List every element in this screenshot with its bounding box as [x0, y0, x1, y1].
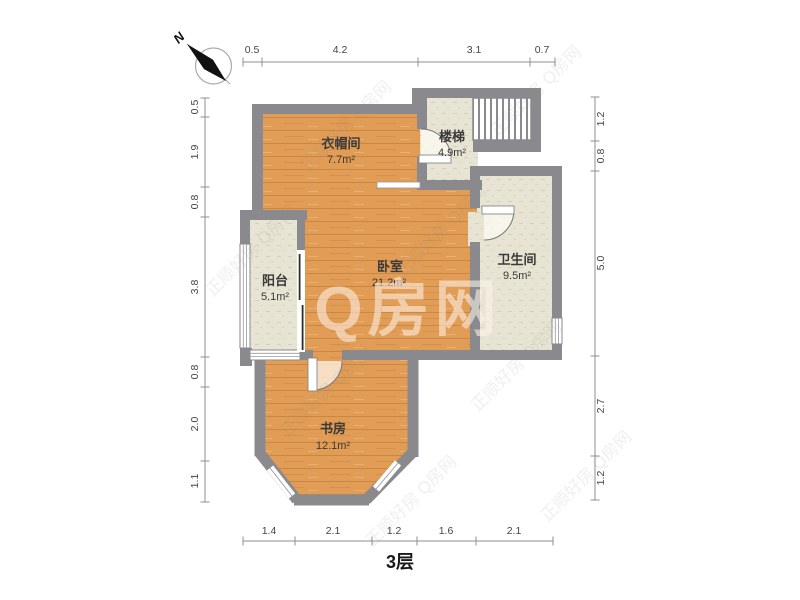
dim-right-2: 0.8 [595, 149, 607, 164]
balcony-bottom-window [250, 350, 300, 360]
room-area-balcony: 5.1m² [261, 291, 289, 303]
door-leaf [308, 358, 317, 391]
room-area-cloakroom: 7.7m² [327, 154, 355, 166]
dim-left-3: 0.8 [189, 195, 201, 210]
dim-top-3: 3.1 [467, 44, 482, 56]
wall-segment [473, 140, 541, 152]
door-leaf [482, 206, 514, 214]
dim-top-1: 0.5 [245, 44, 260, 56]
dim-bottom-2: 2.1 [326, 525, 341, 537]
watermark-tile: 正顺好房 Q房网 [537, 427, 635, 525]
bathroom-doorway-floor [468, 212, 482, 246]
room-label-stairs: 楼梯 [439, 129, 465, 144]
floor-number-label: 3层 [386, 552, 414, 572]
dim-top-2: 4.2 [333, 44, 348, 56]
dim-right-3: 5.0 [595, 256, 607, 271]
dim-left-5: 0.8 [189, 365, 201, 380]
north-compass: N [170, 29, 231, 84]
wall-segment [472, 166, 562, 176]
dim-left-2: 1.9 [189, 145, 201, 160]
room-label-balcony: 阳台 [262, 273, 288, 288]
half-wall-stub [377, 182, 420, 188]
dim-left-4: 3.8 [189, 280, 201, 295]
dim-left-7: 1.1 [189, 474, 201, 489]
dim-right-5: 1.2 [595, 471, 607, 486]
dim-bottom-1: 1.4 [262, 525, 277, 537]
wall-segment [552, 166, 562, 318]
floor-plan-svg: 衣帽间 7.7m² 楼梯 4.9m² 卧室 21.2m² 卫生间 9.5m² 阳… [0, 0, 800, 600]
wall-segment [252, 104, 263, 220]
dim-top-4: 0.7 [535, 44, 550, 56]
dim-right-1: 1.2 [595, 112, 607, 127]
room-label-bathroom: 卫生间 [497, 252, 536, 267]
room-area-study: 12.1m² [316, 440, 351, 452]
dim-bottom-3: 1.2 [387, 525, 402, 537]
north-label: N [170, 29, 188, 47]
wall-segment [252, 104, 422, 114]
floor-plan-page: 衣帽间 7.7m² 楼梯 4.9m² 卧室 21.2m² 卫生间 9.5m² 阳… [0, 0, 800, 600]
dim-left-6: 2.0 [189, 417, 201, 432]
dim-left-1: 0.5 [189, 100, 201, 115]
room-area-bathroom: 9.5m² [503, 270, 531, 282]
room-area-stairs: 4.9m² [438, 147, 466, 159]
balcony-sliding-door [297, 250, 305, 352]
room-label-study: 书房 [320, 421, 346, 436]
wall-segment [417, 98, 427, 129]
dim-bottom-4: 1.6 [439, 525, 454, 537]
dim-right-4: 2.7 [595, 399, 607, 414]
dim-bottom-5: 2.1 [507, 525, 522, 537]
site-watermark: Q房网 [314, 275, 501, 344]
